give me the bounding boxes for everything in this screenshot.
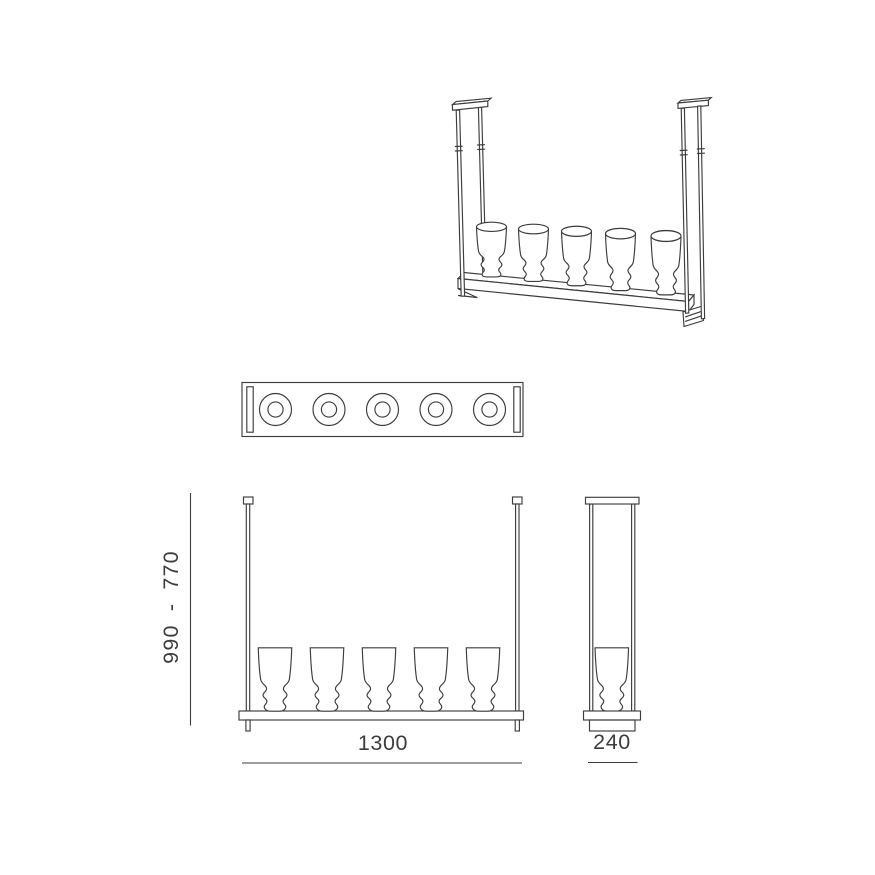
front-view [239, 497, 524, 731]
right-end-strip [514, 387, 520, 432]
glass-3d-4 [606, 228, 636, 290]
glass-side [595, 648, 629, 711]
glass-3d-5 [651, 231, 681, 295]
glass-front-3 [362, 648, 396, 711]
side-rod-back [632, 504, 635, 711]
right-ceiling-cap [513, 497, 523, 504]
right-hanger-front-rod [681, 108, 689, 313]
depth-dimension-label: 240 [572, 730, 652, 754]
tray-bar [239, 711, 524, 720]
right-rod-stub [515, 720, 519, 731]
side-tray-bar [584, 711, 641, 720]
glass-3d-3 [562, 226, 592, 285]
dimension-lines [191, 493, 638, 763]
width-dimension-label: 1300 [333, 731, 433, 755]
side-view [584, 497, 641, 731]
right-suspension-rod [516, 504, 519, 711]
height-dimension-label: 990 - 770 [159, 547, 183, 667]
glass-front-4 [414, 648, 448, 711]
side-rod-front [590, 504, 593, 711]
glass-3d-1 [477, 222, 507, 277]
side-ceiling-cap [586, 497, 640, 504]
technical-drawing-canvas: 990 - 770 1300 240 [0, 0, 875, 875]
left-end-strip [247, 387, 253, 432]
glass-front-2 [310, 648, 344, 711]
perspective-view [453, 98, 712, 327]
drawing-svg [0, 0, 875, 875]
glass-3d-2 [519, 224, 549, 281]
left-hanger-front-rod [456, 110, 464, 296]
rod-joint-collars [455, 145, 704, 155]
glass-front-1 [258, 648, 292, 711]
left-suspension-rod [246, 504, 249, 711]
left-rod-stub [246, 720, 250, 731]
left-ceiling-cap [244, 497, 254, 504]
top-view [242, 383, 523, 437]
right-hanger-back-rod [698, 106, 705, 319]
glass-front-5 [466, 648, 500, 711]
